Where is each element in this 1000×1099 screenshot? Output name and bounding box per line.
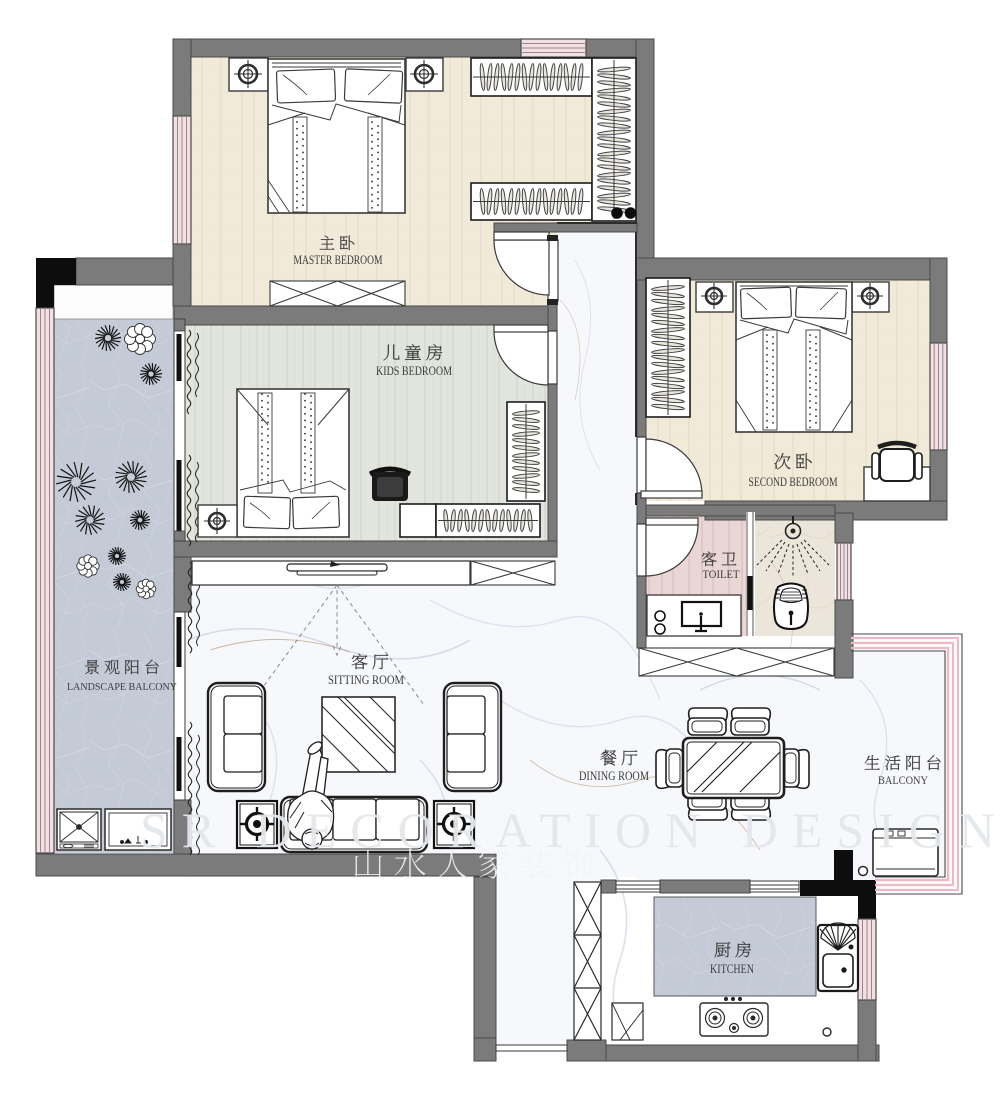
svg-text:SITTING ROOM: SITTING ROOM [328, 672, 404, 687]
svg-text:TOILET: TOILET [703, 569, 740, 581]
svg-text:KITCHEN: KITCHEN [710, 961, 754, 976]
svg-text:SECOND BEDROOM: SECOND BEDROOM [749, 474, 838, 489]
svg-text:SR DECORATION DESIGN: SR DECORATION DESIGN [140, 802, 1000, 858]
svg-text:LANDSCAPE BALCONY: LANDSCAPE BALCONY [67, 681, 177, 693]
svg-text:MASTER BEDROOM: MASTER BEDROOM [294, 252, 383, 267]
svg-text:DINING ROOM: DINING ROOM [579, 768, 649, 783]
svg-text:BALCONY: BALCONY [878, 773, 928, 787]
svg-text:KIDS BEDROOM: KIDS BEDROOM [376, 363, 452, 378]
